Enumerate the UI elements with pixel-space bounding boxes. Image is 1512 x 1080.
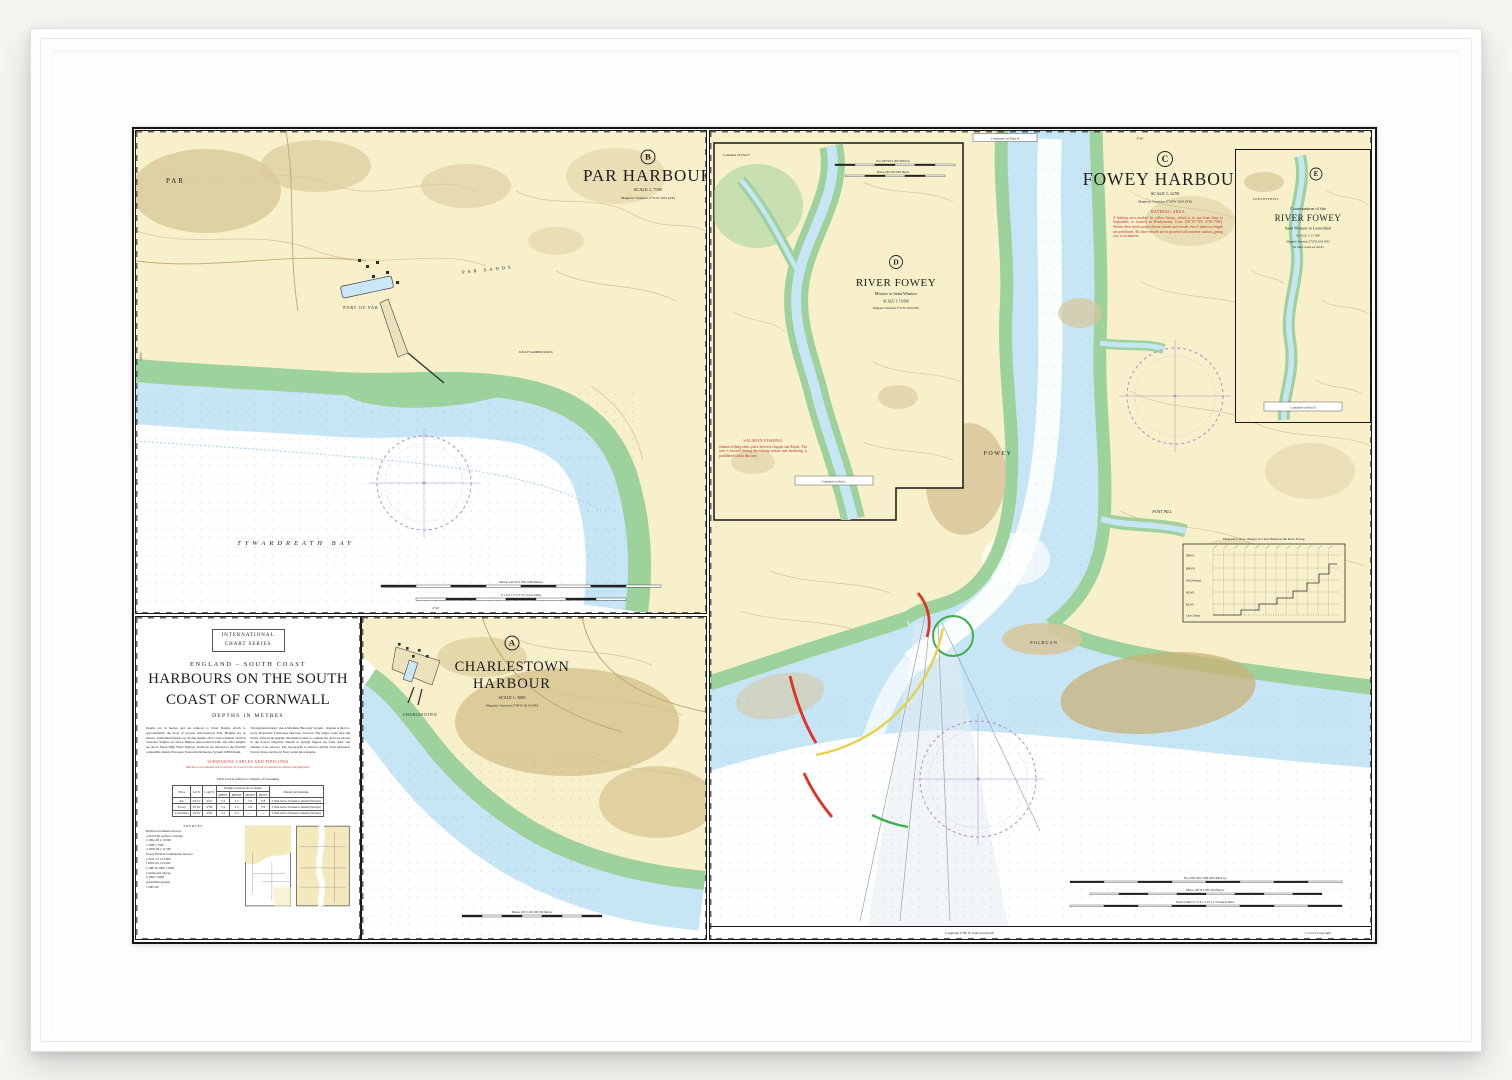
- diagram-row-label: MLWS: [1186, 604, 1194, 607]
- place-label: KILLYVARDER ROCK: [519, 350, 553, 354]
- soundings-texture-river: [1006, 151, 1102, 591]
- chart-title-line1: HARBOURS ON THE SOUTH: [146, 671, 350, 689]
- mat-board: Metres 100 50 0 500 1000 Metres 0·1 0 0·…: [52, 50, 1460, 1030]
- panel-scale: SCALE 1: 5000: [499, 695, 526, 700]
- tidal-table-caption: Tidal Levels referred to Datum of Soundi…: [146, 777, 350, 781]
- scale-bar-label: Feet 1000 500 0 1000 2000 Feet: [876, 160, 910, 163]
- bathing-area-note: BATHING AREA A bathing area marked by ye…: [1113, 209, 1223, 239]
- region-heading: ENGLAND – SOUTH COAST: [146, 661, 350, 668]
- par-harbour-map: Metres 100 50 0 500 1000 Metres 0·1 0 0·…: [136, 131, 706, 613]
- panel-pretitle: Continuation of the: [1290, 206, 1326, 211]
- panel-title: PAR HARBOUR: [583, 166, 706, 185]
- diagram-row-label: MLWN: [1186, 592, 1194, 595]
- source-line: i 1985–89: [146, 885, 240, 890]
- cell: —: [257, 810, 270, 816]
- panel-magnetic: Magnetic Variation 2°49'W 2014 (9'E): [486, 704, 538, 708]
- soundings-texture: [362, 745, 602, 935]
- chart-notes: Depths are in metres and are reduced to …: [146, 726, 350, 754]
- longitude-note: Longitude 4°38' W from Greenwich: [945, 931, 994, 935]
- panel-title: RIVER FOWEY: [1275, 213, 1342, 223]
- continued-bottom-label: Continued on Plan D: [1264, 402, 1342, 411]
- diagram-row-label: Chart Datum: [1186, 615, 1201, 618]
- panel-title: HARBOUR: [473, 676, 551, 692]
- plan-letter: A: [509, 638, 516, 648]
- depths-note: DEPTHS IN METRES: [146, 713, 350, 719]
- scale-bar-label: Metres 100 50 0 500 1000 Metres: [499, 580, 543, 584]
- salmon-fishing-heading: SALMON FISHING: [719, 438, 807, 443]
- place-label: PAR: [166, 177, 185, 185]
- scale-bar-label: Metres 100 0 500 1000 Metres: [877, 171, 909, 174]
- longitude-label: 4°36': [1137, 137, 1144, 141]
- chart-series-box: INTERNATIONAL CHART SERIES: [212, 629, 285, 652]
- cell: 3·20m below Ordnance Datum (Newlyn): [270, 810, 324, 816]
- tidal-levels-table: Place Lat N Long W Heights in metres abo…: [172, 785, 323, 817]
- cell: 4°40': [202, 810, 216, 816]
- panel-par-harbour: Metres 100 50 0 500 1000 Metres 0·1 0 0·…: [135, 130, 707, 614]
- cell: Lostwithiel: [173, 810, 191, 816]
- panel-fowey-harbour: Diagram to show changes in Chart Datum i…: [709, 130, 1372, 940]
- place-label: CHARLESTOWN: [403, 713, 437, 717]
- continued-bottom-label: Continued on Plan C: [795, 476, 873, 485]
- continued-label: Continued on Plan C: [821, 480, 846, 484]
- sources-block: SOURCES British Government Surveys a 201…: [146, 824, 350, 908]
- panel-title: RIVER FOWEY: [856, 277, 936, 289]
- chart-datum-diagram: Diagram to show changes in Chart Datum i…: [1183, 537, 1345, 622]
- salmon-fishing-note: SALMON FISHING Salmon fishing takes plac…: [719, 438, 807, 459]
- panel-charlestown: A CHARLESTOWN HARBOUR SCALE 1: 5000 Magn…: [361, 616, 707, 940]
- series-line: INTERNATIONAL: [222, 632, 275, 641]
- soundings-texture: [136, 393, 641, 608]
- diagram-row-label: MHWN: [1186, 568, 1195, 571]
- continuation-map: LOSTWITHIEL E Continuation of the RIVER …: [1236, 150, 1370, 422]
- soundings-texture: [710, 691, 1371, 919]
- place-label: FOWEY: [984, 451, 1013, 457]
- panel-river-fowey: D RIVER FOWEY Mixtow to Saint Winnow SCA…: [713, 142, 964, 521]
- lostwithiel-town: [1244, 172, 1284, 192]
- framed-nautical-chart: Metres 100 50 0 500 1000 Metres 0·1 0 0·…: [0, 0, 1512, 1080]
- bay-label: TYWARDREATH BAY: [237, 540, 355, 547]
- panel-title-block: INTERNATIONAL CHART SERIES ENGLAND – SOU…: [135, 616, 361, 940]
- scale-bar-label: Nautical Miles 0·1 0 0·1 0·2 0·3 0·4 Nau…: [1176, 901, 1234, 904]
- panel-scale: SCALE 1: 15 000: [883, 300, 909, 304]
- bathing-area-heading: BATHING AREA: [1113, 209, 1223, 214]
- panel-subtitle: Saint Winnow to Lostwithiel: [1285, 226, 1332, 231]
- continued-label: Continued on Plan D: [1290, 406, 1316, 410]
- panel-magnetic: Magnetic Variation 2°51'W 2014 (9'E): [621, 196, 676, 200]
- chart-title-line2: COAST OF CORNWALL: [146, 692, 350, 710]
- copyright-note: © Crown Copyright: [1304, 931, 1331, 935]
- linear-scales-note: For linear scales see plan D: [1293, 246, 1324, 249]
- panel-magnetic: Magnetic Variation 2°53'W 2014 (9'E): [1286, 241, 1329, 244]
- notes-left-column: Depths are in metres and are reduced to …: [146, 726, 246, 754]
- panel-scale: SCALE 1: 7500: [634, 187, 663, 192]
- source-diagram-2: [296, 824, 350, 908]
- col-header: Lat N: [191, 785, 203, 797]
- plan-letter: E: [1314, 170, 1319, 178]
- chart-print: Metres 100 50 0 500 1000 Metres 0·1 0 0·…: [132, 127, 1377, 944]
- diagram-row-label: MHWS: [1186, 555, 1195, 558]
- place-label: PONT PILL: [1151, 509, 1172, 514]
- table-row: Lostwithiel 50°24' 4°40' 5·4 4·3 — — 3·2…: [173, 810, 323, 816]
- diagram-row-label: OD (Newlyn): [1186, 580, 1201, 583]
- longitude-label: 4°42': [432, 606, 439, 610]
- panel-magnetic: Magnetic Variation 2°50'W 2014 (9'E): [1138, 200, 1193, 204]
- plan-letter: B: [645, 152, 651, 162]
- col-header: Datum and Remarks: [270, 785, 324, 797]
- panel-subtitle: Mixtow to Saint Winnow: [875, 291, 917, 296]
- plan-letter: D: [893, 257, 899, 266]
- series-line: CHART SERIES: [222, 641, 275, 650]
- panel-scale: SCALE 1: 6250: [1151, 191, 1180, 196]
- cables-heading: SUBMARINE CABLES AND PIPELINES: [146, 760, 350, 764]
- col-header: Long W: [202, 785, 216, 797]
- place-label: POLRUAN: [1030, 640, 1058, 645]
- scale-bar-label: Metres 100 0 100 200 300 Metres: [512, 910, 553, 914]
- source-diagram-1: [245, 824, 291, 908]
- scale-bar-label: Feet 1000 500 0 1000 2000 3000 Feet: [1184, 877, 1227, 880]
- cell: 4·3: [230, 810, 244, 816]
- continued-label: Continued on Plan D: [991, 137, 1020, 141]
- continued-label: Continued on Plan E: [723, 153, 750, 157]
- col-header: Place: [173, 785, 191, 797]
- panel-magnetic: Magnetic Variation 2°51'W 2014 (9'E): [873, 306, 919, 310]
- plan-letter: C: [1162, 154, 1169, 164]
- cell: 50°24': [191, 810, 203, 816]
- place-label: LOSTWITHIEL: [1253, 197, 1280, 201]
- picture-frame: Metres 100 50 0 500 1000 Metres 0·1 0 0·…: [30, 28, 1482, 1052]
- cables-note: Mariners are advised not to anchor or tr…: [177, 765, 320, 769]
- panel-title: FOWEY HARBOUR: [1083, 169, 1248, 189]
- diagram-title: Diagram to show changes in Chart Datum i…: [1223, 537, 1305, 541]
- cell: 5·4: [216, 810, 229, 816]
- scale-bar-label: Metres 100 50 0 500 1000 Metres: [1186, 889, 1224, 892]
- latitude-label: 50°21': [139, 352, 143, 361]
- sources-text: SOURCES British Government Surveys a 201…: [146, 824, 240, 889]
- river-fowey-map: D RIVER FOWEY Mixtow to Saint Winnow SCA…: [713, 142, 964, 521]
- bathing-area-text: A bathing area marked by yellow buoys, w…: [1113, 216, 1223, 239]
- cell: —: [243, 810, 256, 816]
- panel-title: CHARLESTOWN: [455, 659, 570, 675]
- title-block: INTERNATIONAL CHART SERIES ENGLAND – SOU…: [136, 617, 360, 939]
- panel-scale: SCALE 1: 15 000: [1296, 234, 1320, 238]
- chart-neatline: Metres 100 50 0 500 1000 Metres 0·1 0 0·…: [132, 127, 1377, 944]
- panel-continuation: LOSTWITHIEL E Continuation of the RIVER …: [1235, 149, 1371, 423]
- scale-bar-label: 0·1 0 0·1 0·2 0·3 0·4 Sea Miles: [501, 593, 542, 597]
- salmon-fishing-text: Salmon fishing takes place between Augus…: [719, 445, 807, 459]
- chart-bottom-margin: Longitude 4°38' W from Greenwich © Crown…: [710, 926, 1371, 939]
- charlestown-map: A CHARLESTOWN HARBOUR SCALE 1: 5000 Magn…: [362, 617, 706, 939]
- notes-right-column: Navigational marks: IALA Maritime Buoyag…: [251, 726, 351, 754]
- place-label: PORT OF PAR: [343, 305, 378, 310]
